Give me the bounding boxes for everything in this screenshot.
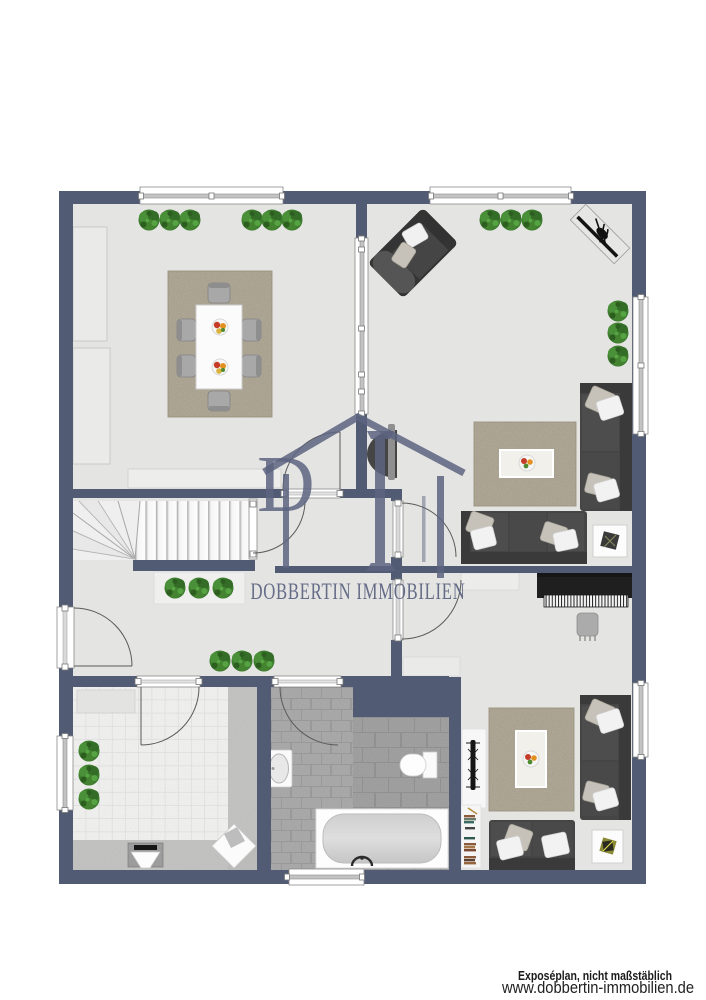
svg-text:D: D [257,441,315,529]
svg-text:www.dobbertin-immobilien.de: www.dobbertin-immobilien.de [501,978,694,997]
svg-text:DOBBERTIN IMMOBILIEN: DOBBERTIN IMMOBILIEN [251,579,466,604]
